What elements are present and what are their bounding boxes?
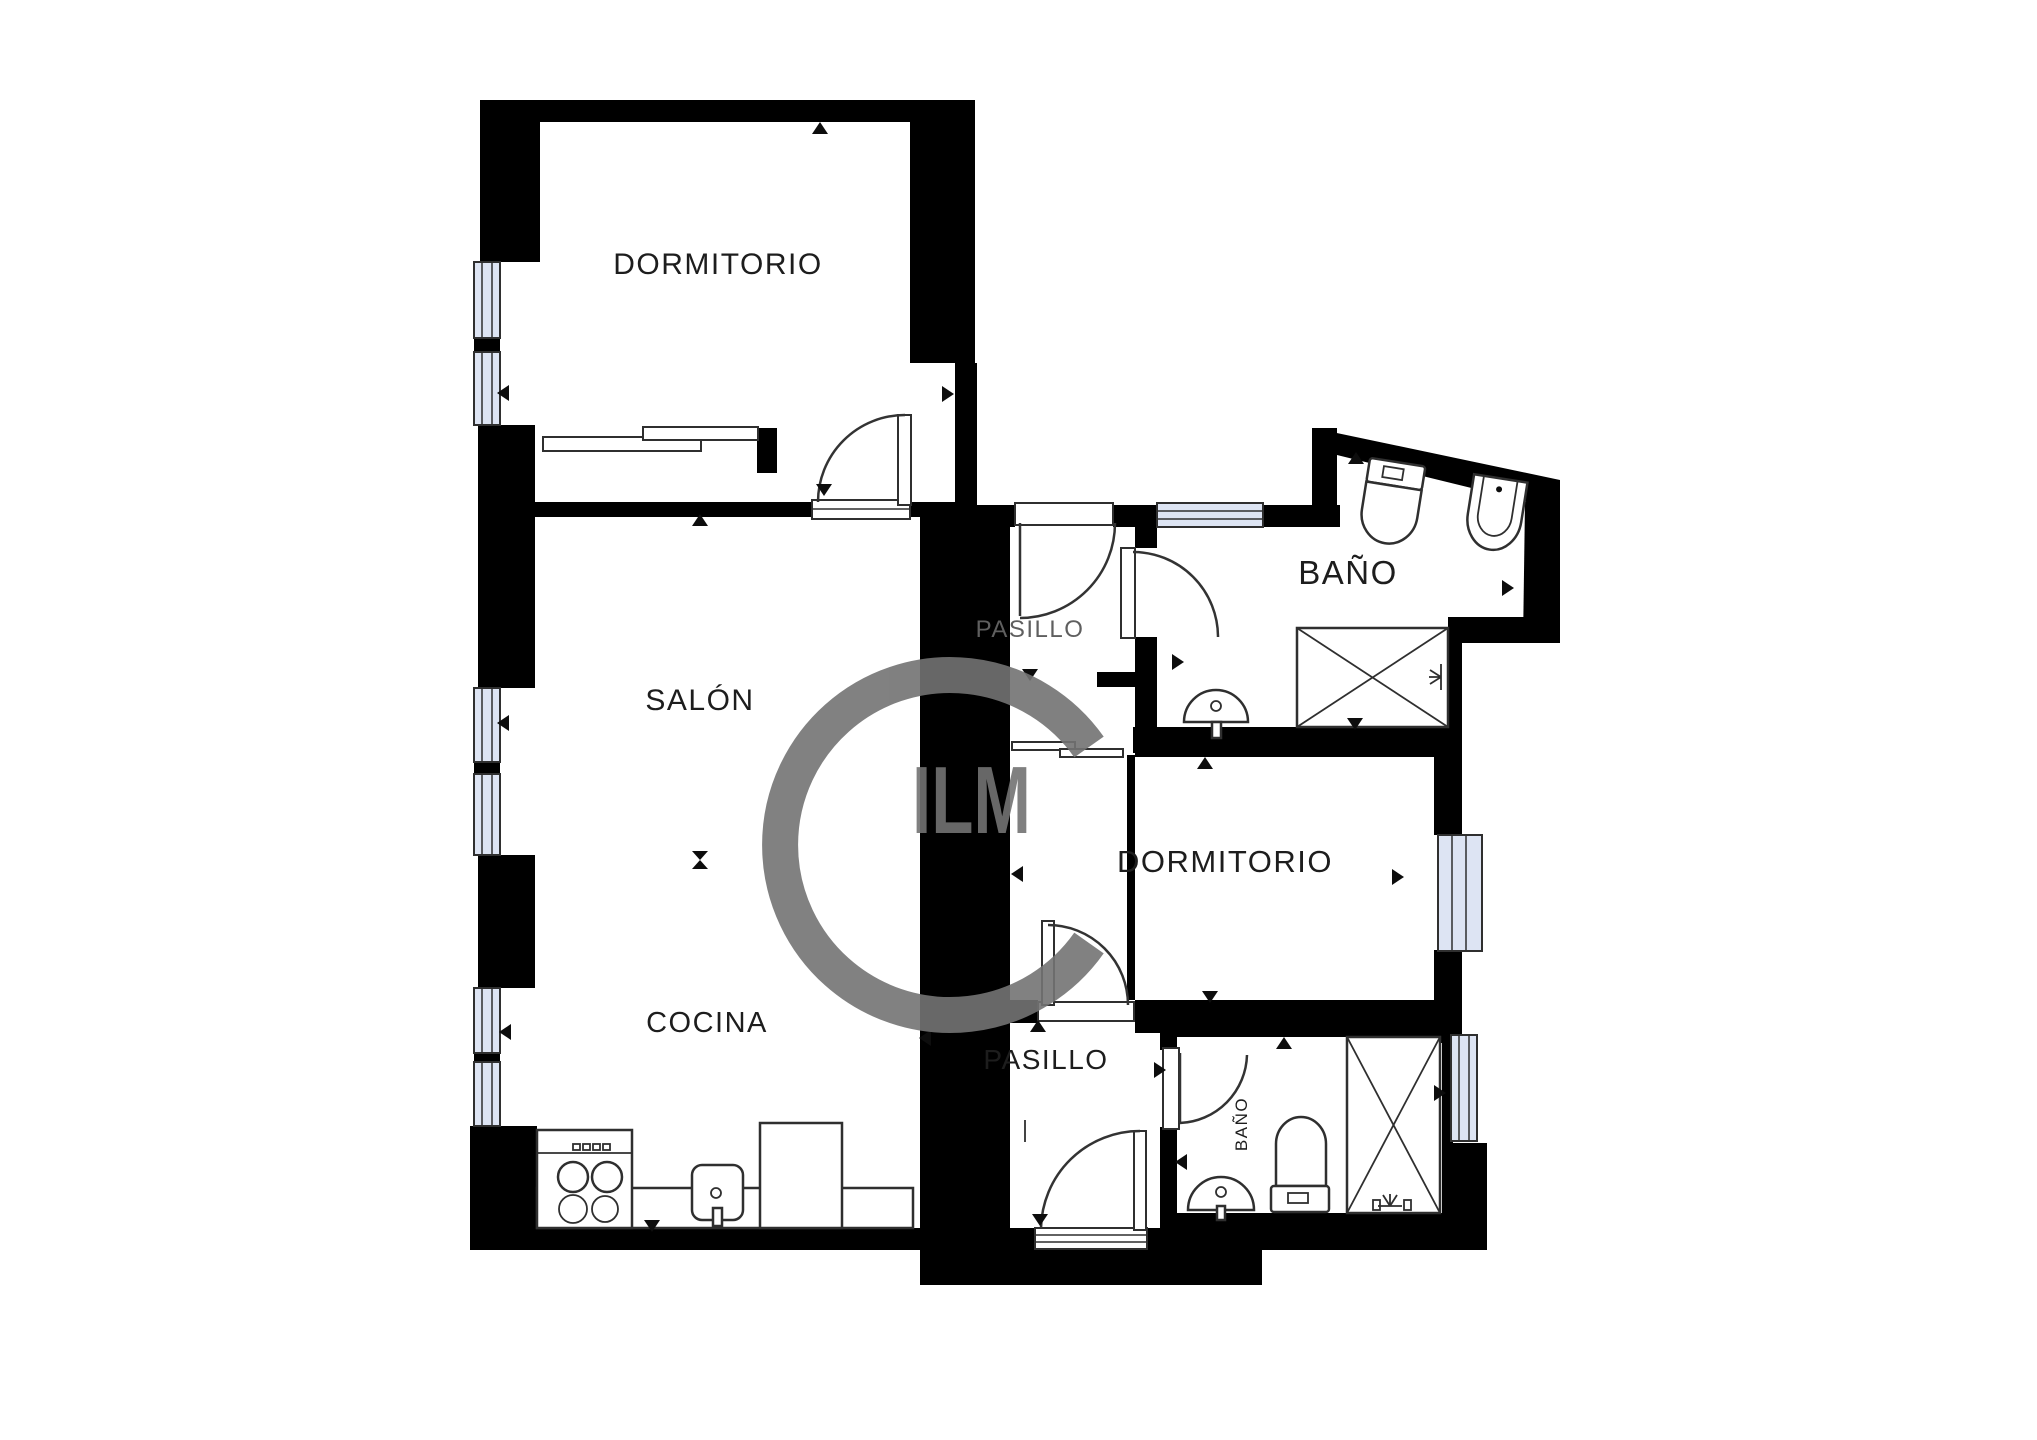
entrance-threshold — [1035, 1228, 1147, 1249]
window — [474, 1062, 500, 1126]
window — [474, 774, 500, 855]
window — [1438, 835, 1482, 951]
window — [474, 688, 500, 762]
door-threshold — [1163, 1048, 1179, 1129]
room-label-bedroom-top: DORMITORIO — [613, 248, 822, 281]
window — [474, 352, 500, 425]
room-label-hall-lower: PASILLO — [983, 1044, 1108, 1075]
floorplan-canvas: ILM DORMITORIO SALÓN COCINA PASILLO BAÑO… — [0, 0, 2037, 1440]
watermark-text: ILM — [912, 746, 1031, 854]
room-label-bath-lower: BAÑO — [1232, 1097, 1251, 1151]
toilet-icon — [1271, 1117, 1329, 1212]
room-label-kitchen: COCINA — [646, 1007, 768, 1039]
background — [0, 0, 2037, 1440]
room-label-living: SALÓN — [645, 684, 754, 717]
window — [1157, 503, 1263, 527]
window — [474, 988, 500, 1053]
room-label-bedroom-right: DORMITORIO — [1117, 844, 1333, 879]
window — [1451, 1035, 1477, 1141]
room-label-bath-upper: BAÑO — [1298, 554, 1398, 591]
door-threshold — [812, 500, 910, 519]
door-leaf — [1134, 1131, 1146, 1230]
shower-icon — [1347, 1037, 1440, 1213]
shower-icon — [1297, 628, 1448, 727]
kitchen-sink-icon — [692, 1165, 743, 1226]
door-leaf — [898, 415, 911, 505]
stove-icon — [537, 1130, 632, 1228]
opening-sill — [1015, 503, 1113, 525]
room-label-hall-upper: PASILLO — [976, 616, 1085, 643]
window — [474, 262, 500, 338]
floorplan-page: ILM DORMITORIO SALÓN COCINA PASILLO BAÑO… — [0, 0, 2037, 1440]
door-leaf — [1121, 548, 1135, 638]
